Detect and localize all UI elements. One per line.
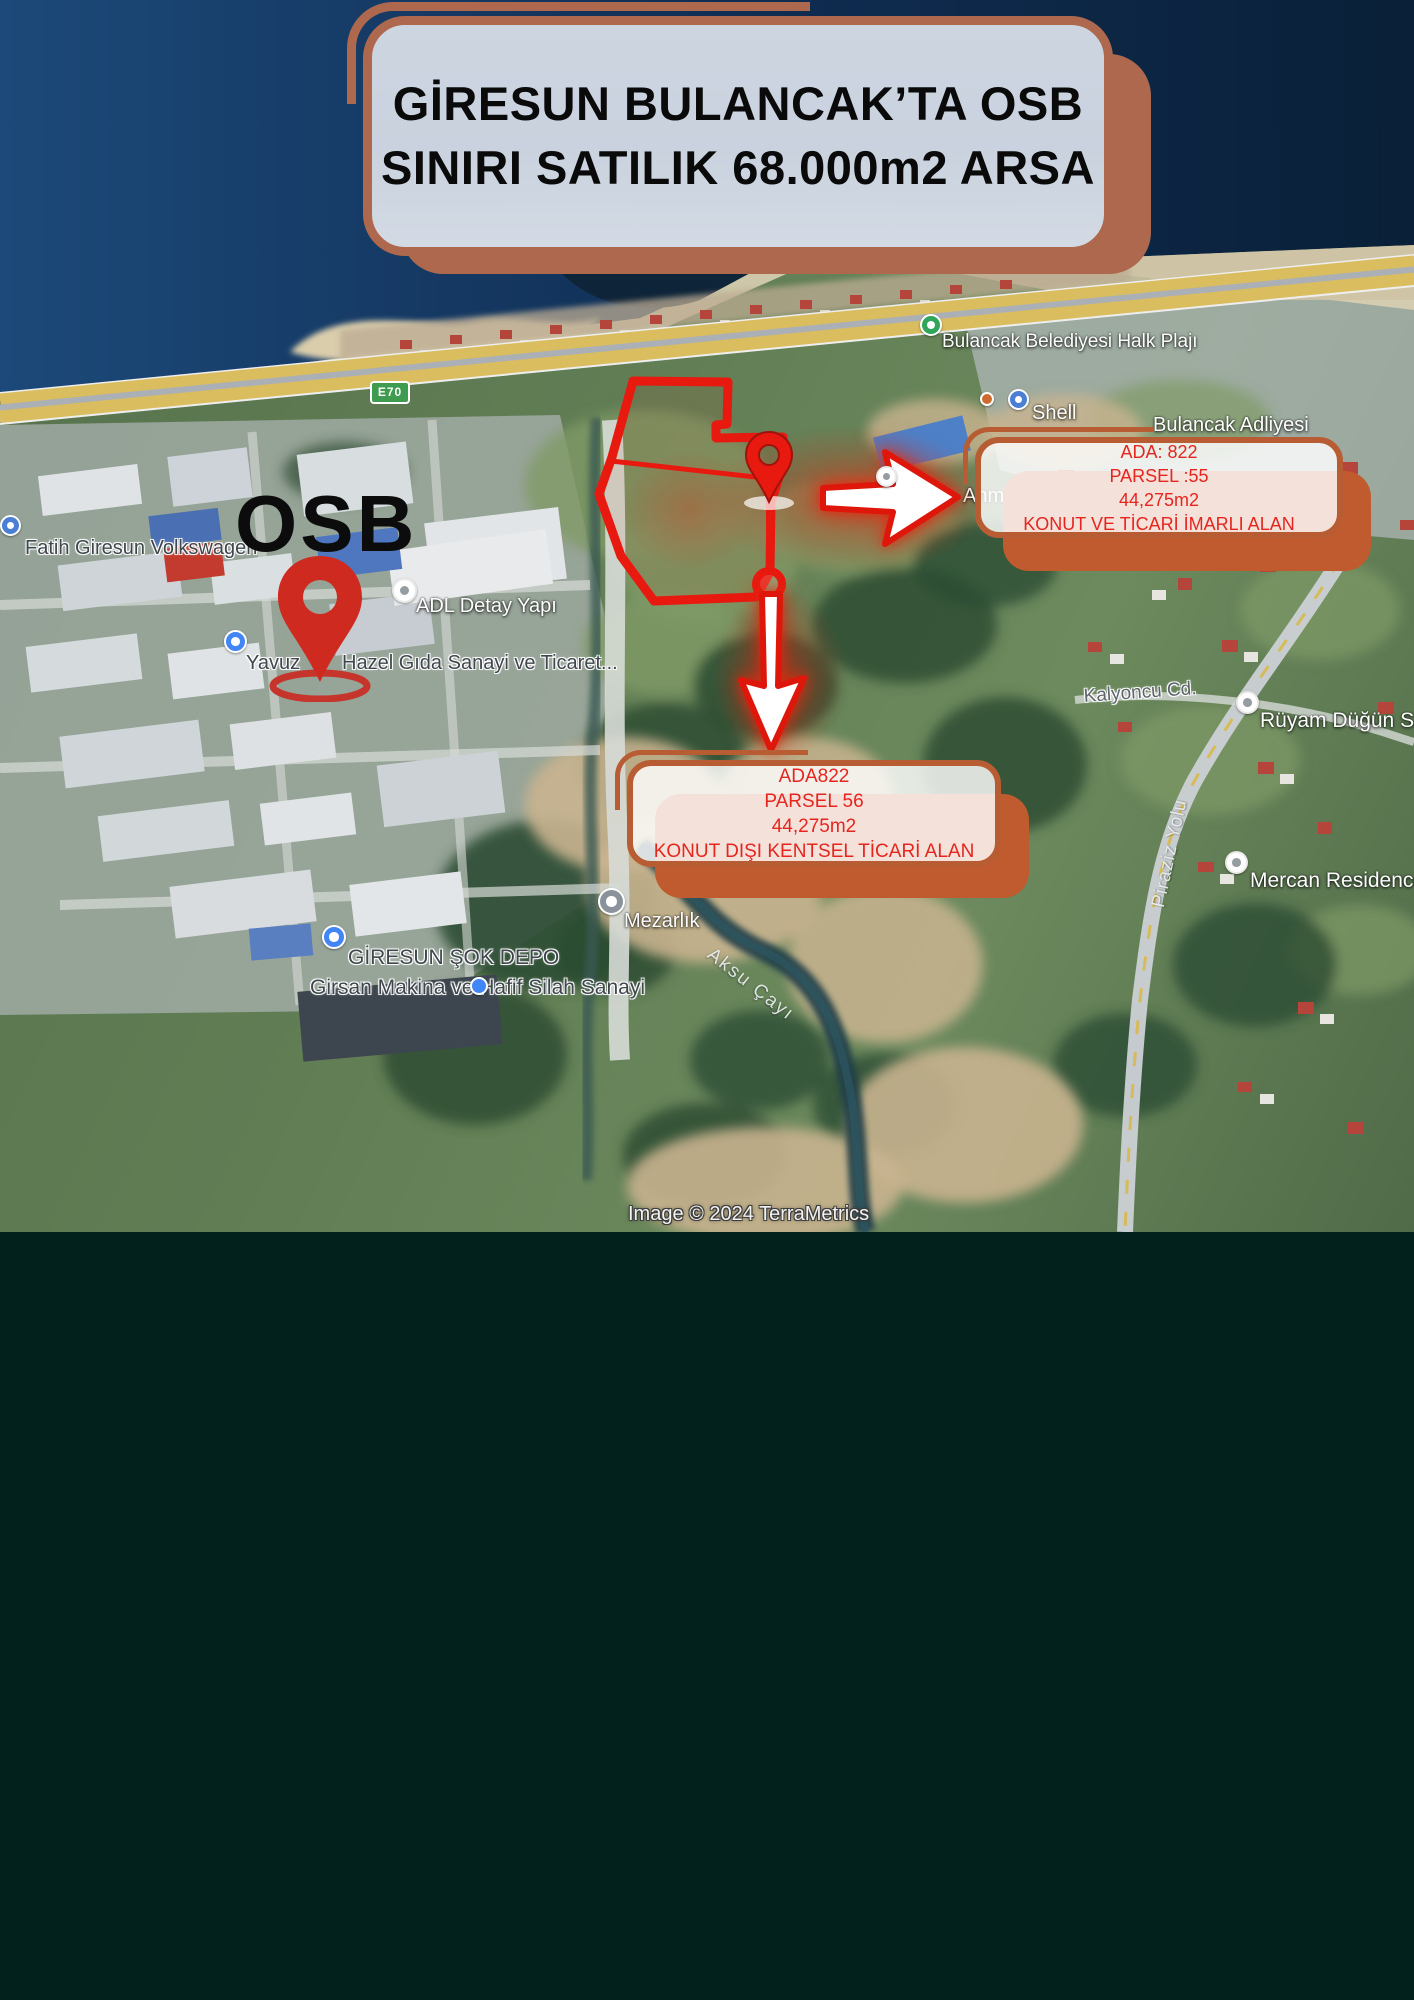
map-label-mercan: Mercan Residence <box>1250 869 1414 893</box>
down-arrow <box>716 588 836 760</box>
real-estate-flyer: Ahmet Fatoğlu Deni OSB ADA: 82 <box>0 0 1414 2000</box>
parcel55-callout: ADA: 822 PARSEL :55 44,275m2 KONUT VE Tİ… <box>975 437 1343 538</box>
mercan-poi-icon <box>1225 851 1248 874</box>
volkswagen-pin-icon <box>0 515 21 536</box>
parcel56-area: 44,275m2 <box>772 814 857 839</box>
girsan-poi-icon <box>470 977 488 995</box>
map-label-hazel-gida: Hazel Gıda Sanayi ve Ticaret... <box>342 652 618 675</box>
title-banner: GİRESUN BULANCAK’TA OSB SINIRI SATILIK 6… <box>363 16 1113 256</box>
osb-pin <box>268 552 372 702</box>
adl-poi-icon <box>392 578 417 603</box>
map-label-shell: Shell <box>1032 402 1076 425</box>
map-label-ruyam: Rüyam Düğün Sa <box>1260 709 1414 733</box>
parcel55-area: 44,275m2 <box>1119 488 1199 512</box>
cemetery-poi-icon <box>598 888 625 915</box>
beach-pin-icon <box>920 314 942 336</box>
map-label-adl-detay: ADL Detay Yapı <box>416 595 557 618</box>
e70-road-badge: E70 <box>370 381 410 404</box>
parcel55-parsel: PARSEL :55 <box>1109 464 1208 488</box>
parcel56-parsel: PARSEL 56 <box>764 789 863 814</box>
details-panel: 1.PARSEL: 23,748 m2 2. PARSEL 44,275m2 T… <box>0 1232 1414 2000</box>
parcel55-ada: ADA: 822 <box>1120 440 1197 464</box>
title-line-2: SINIRI SATILIK 68.000m2 ARSA <box>381 136 1095 200</box>
map-label-adliye: Bulancak Adliyesi <box>1153 414 1309 437</box>
parcel56-callout: ADA822 PARSEL 56 44,275m2 KONUT DIŞI KEN… <box>627 760 1001 867</box>
map-label-volkswagen: Fatih Giresun Volkswagen <box>25 537 257 560</box>
ruyam-poi-icon <box>1236 691 1259 714</box>
map-label-yavuz: Yavuz <box>246 652 300 675</box>
lock-poi-icon <box>224 630 247 653</box>
map-attribution: Image © 2024 TerraMetrics <box>628 1203 869 1226</box>
map-label-halk-plaji: Bulancak Belediyesi Halk Plajı <box>942 331 1198 353</box>
right-arrow <box>688 404 988 594</box>
map-label-mezarlik: Mezarlık <box>624 910 700 933</box>
title-line-1: GİRESUN BULANCAK’TA OSB <box>393 72 1083 136</box>
osb-area-label: OSB <box>235 478 417 570</box>
parcel55-zoning: KONUT VE TİCARİ İMARLI ALAN <box>1023 512 1294 536</box>
fuel-station-icon <box>980 392 994 406</box>
satellite-map: Ahmet Fatoğlu Deni OSB ADA: 82 <box>0 0 1414 1232</box>
shell-station-icon <box>1008 389 1029 410</box>
road-poi-icon <box>876 466 897 487</box>
shop-bag-poi-icon <box>322 925 346 949</box>
map-label-sok-depo: GİRESUN ŞOK DEPO <box>348 946 559 970</box>
parcel56-ada: ADA822 <box>779 764 850 789</box>
parcel56-zoning: KONUT DIŞI KENTSEL TİCARİ ALAN <box>654 839 975 864</box>
